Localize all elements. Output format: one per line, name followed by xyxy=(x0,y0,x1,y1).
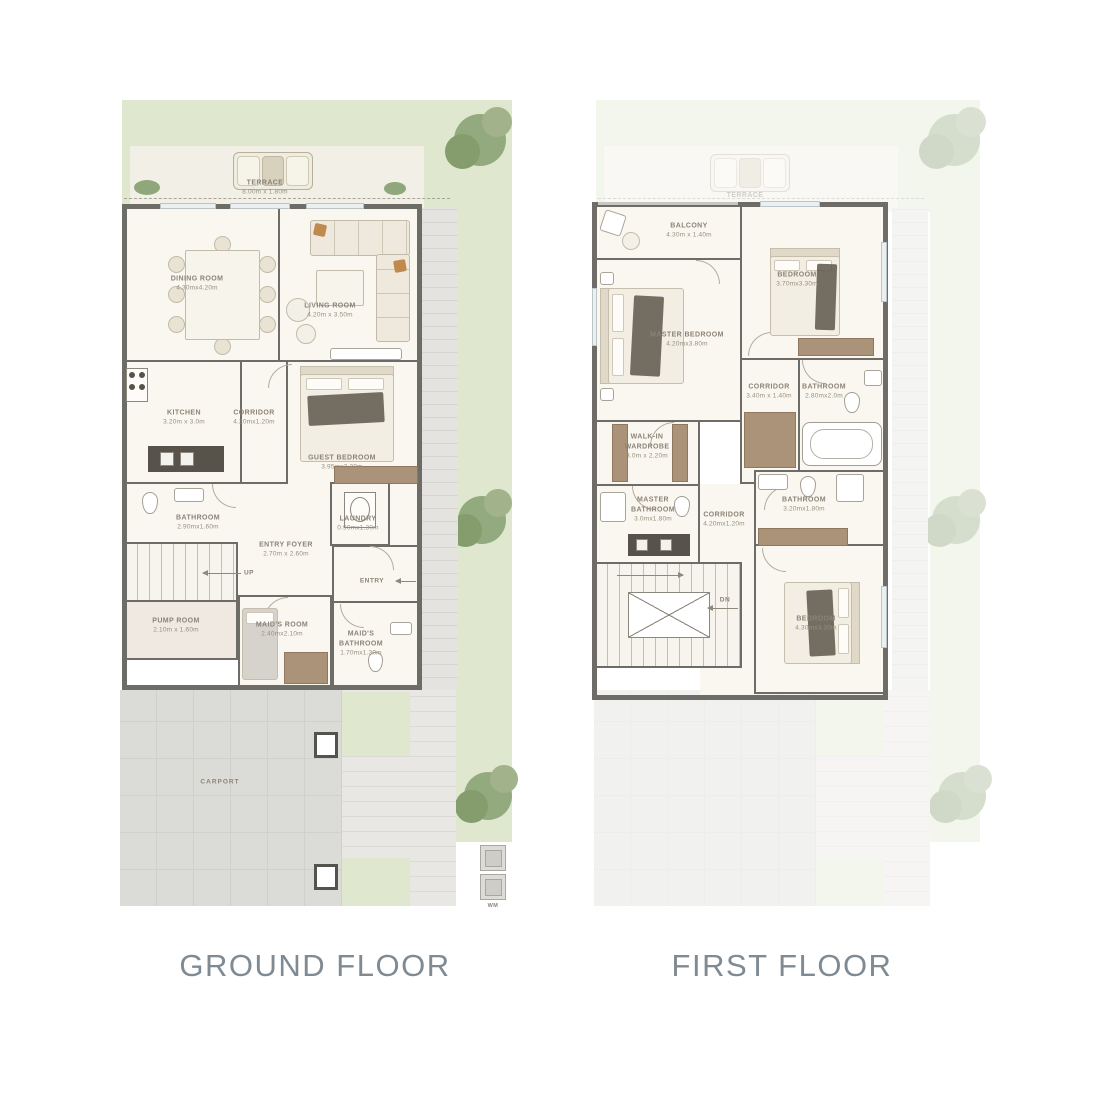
lawn-patch-faded xyxy=(816,858,884,906)
room-label-bathroom: BATHROOM 2.90mx1.60m xyxy=(153,514,243,533)
room-label-laundry: LAUNDRY 0.90mx1.30m xyxy=(323,515,393,534)
bathroom-sink xyxy=(174,488,204,502)
bathtub-icon xyxy=(802,422,882,466)
pouf xyxy=(296,324,316,344)
up-arrow-icon xyxy=(203,573,241,574)
pillow xyxy=(306,378,342,390)
tree-icon xyxy=(464,772,512,820)
sink-basin xyxy=(160,452,174,466)
accent-pillow xyxy=(393,259,407,273)
room-label-entry-foyer: ENTRY FOYER 2.70m x 2.60m xyxy=(241,541,331,560)
pillow xyxy=(348,378,384,390)
burner xyxy=(129,384,135,390)
stairs-ground xyxy=(124,542,238,602)
tree-icon-faded xyxy=(938,772,986,820)
side-pavers-faded xyxy=(892,208,928,690)
room-label-pump: PUMP ROOM 2.10m x 1.60m xyxy=(131,617,221,636)
chair-icon xyxy=(168,316,185,333)
wm-label: WM xyxy=(488,903,499,909)
pillow xyxy=(612,294,624,332)
wardrobe xyxy=(284,652,328,684)
chair-icon xyxy=(259,316,276,333)
window xyxy=(881,242,887,302)
first-floor-title: FIRST FLOOR xyxy=(672,948,893,984)
garden-right-faded xyxy=(930,100,980,842)
utility-box xyxy=(314,732,338,758)
first-floor-plan: TERRACE xyxy=(592,92,986,914)
ground-floor-plan: TERRACE 8.00m x 1.80m DINING ROOM 4.30mx… xyxy=(118,92,512,914)
room-label-corridor: CORRIDOR 4.20mx1.20m xyxy=(219,409,289,428)
ground-floor-title: GROUND FLOOR xyxy=(179,948,450,984)
chair-icon xyxy=(259,286,276,303)
floor-plan-sheet: TERRACE 8.00m x 1.80m DINING ROOM 4.30mx… xyxy=(0,0,1100,1100)
walkway-lawn-patch xyxy=(342,692,410,756)
terrace-bench-faded xyxy=(710,154,790,192)
window xyxy=(160,203,216,209)
wardrobe xyxy=(758,528,848,546)
coffee-table xyxy=(316,270,364,306)
walkway-lawn-patch xyxy=(342,858,410,906)
garden-right-strip xyxy=(456,100,512,842)
carport-paving xyxy=(120,690,342,906)
room-label-maids-room: MAID'S ROOM 2.40mx2.10m xyxy=(239,621,325,640)
room-label-maids-bathroom: MAID'S BATHROOM 1.70mx1.30m xyxy=(329,630,393,659)
window xyxy=(881,586,887,648)
entry-label: ENTRY xyxy=(360,578,384,585)
window xyxy=(230,203,290,209)
room-label-kitchen: KITCHEN 3.20m x 3.0m xyxy=(144,409,224,428)
room-label-bedroom-2: BEDROOM 4.30mx3.30m xyxy=(776,615,856,634)
tv-console xyxy=(330,348,402,360)
terrace-boundary-dashed xyxy=(124,198,450,199)
pillow xyxy=(774,260,800,271)
pillow xyxy=(838,588,849,618)
bush-icon xyxy=(134,180,160,195)
room-label-dining: DINING ROOM 4.30mx4.20m xyxy=(152,275,242,294)
dn-arrow-icon xyxy=(708,608,738,609)
tree-icon-faded xyxy=(932,496,980,544)
dn-label: DN xyxy=(720,597,730,604)
burner xyxy=(139,372,145,378)
utility-box xyxy=(314,864,338,890)
sink-basin xyxy=(636,539,648,551)
side-pavers xyxy=(422,208,458,690)
tree-icon xyxy=(458,496,506,544)
burner xyxy=(139,384,145,390)
bathroom-sink xyxy=(758,474,788,490)
balcony-railing xyxy=(598,202,738,205)
room-label-guest-bedroom: GUEST BEDROOM 3.95mx3.30m xyxy=(292,454,392,473)
up-label: UP xyxy=(244,570,254,577)
nightstand xyxy=(600,272,614,285)
bed-throw xyxy=(307,392,384,426)
bush-icon xyxy=(384,182,406,195)
chair-icon xyxy=(214,338,231,355)
bathroom-sink xyxy=(390,622,412,635)
tree-icon xyxy=(454,114,506,166)
carport-label: CARPORT xyxy=(200,779,239,786)
room-label-master-bathroom: MASTER BATHROOM 3.0mx1.80m xyxy=(621,496,685,525)
chair-icon xyxy=(168,256,185,273)
room-label-terrace: TERRACE 8.00m x 1.80m xyxy=(205,179,325,198)
accent-pillow xyxy=(313,223,327,237)
room-label-bedroom-1: BEDROOM 3.70mx3.30m xyxy=(757,271,837,290)
terrace-label-faded: TERRACE xyxy=(727,191,764,201)
water-meter-box xyxy=(480,845,506,871)
chair-icon xyxy=(259,256,276,273)
water-meter-box xyxy=(480,874,506,900)
room-label-bathroom-2: BATHROOM 3.20mx1.80m xyxy=(764,496,844,515)
room-label-living: LIVING ROOM 4.20m x 3.50m xyxy=(285,302,375,321)
room-label-corridor-2: CORRIDOR 4.20mx1.20m xyxy=(696,511,752,530)
carport-faded xyxy=(594,690,816,906)
burner xyxy=(129,372,135,378)
wardrobe xyxy=(744,412,796,468)
bathroom-sink xyxy=(864,370,882,386)
pillow xyxy=(612,338,624,376)
room-label-balcony: BALCONY 4.30m x 1.40m xyxy=(634,222,744,241)
wardrobe xyxy=(798,338,874,356)
stair-void xyxy=(628,592,710,638)
dining-table xyxy=(185,250,260,340)
lawn-patch-faded xyxy=(816,692,884,756)
window xyxy=(592,288,597,346)
window xyxy=(760,201,820,207)
nightstand xyxy=(600,388,614,401)
window xyxy=(306,203,364,209)
stair-arrow-icon xyxy=(617,575,683,576)
sink-basin xyxy=(660,539,672,551)
entry-arrow-icon xyxy=(396,581,416,582)
room-label-master-bedroom: MASTER BEDROOM 4.20mx3.80m xyxy=(632,331,742,350)
tree-icon-faded xyxy=(928,114,980,166)
room-label-corridor-1: CORRIDOR 3.40m x 1.40m xyxy=(741,383,797,402)
sink-basin xyxy=(180,452,194,466)
room-label-walkin: WALK-IN WARDROBE 3.0m x 2.20m xyxy=(615,433,679,462)
